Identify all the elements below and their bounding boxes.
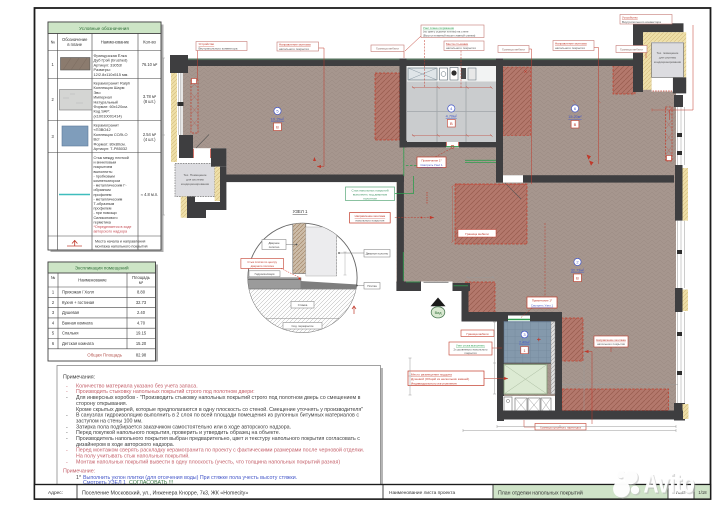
svg-text:Примечания:: Примечания: xyxy=(63,375,95,381)
svg-text:В: В xyxy=(574,122,577,127)
svg-text:Наименование: Наименование xyxy=(101,40,130,45)
svg-text:Индивидуального изготовления: Индивидуального изготовления xyxy=(411,382,457,386)
svg-text:2.40м²: 2.40м² xyxy=(519,341,530,345)
svg-text:12/2.8х110х515 мм.: 12/2.8х110х515 мм. xyxy=(94,72,129,77)
svg-text:Общая Площадь: Общая Площадь xyxy=(87,353,122,358)
svg-text:- металлическим Г-: - металлическим Г- xyxy=(94,184,128,188)
svg-text:План отделки напольных покрыти: План отделки напольных покрытий xyxy=(498,489,583,496)
svg-text:Вид: Вид xyxy=(435,311,443,315)
svg-text:Смотреть Узел 1: Смотреть Узел 1 xyxy=(531,303,554,307)
svg-text:кондиционирования: кондиционирования xyxy=(181,182,209,186)
svg-text:4.70м²: 4.70м² xyxy=(446,115,458,119)
svg-text:покрытием: покрытием xyxy=(94,165,113,169)
svg-text:Avito: Avito xyxy=(644,469,695,499)
svg-text:Артикул: Т-Р85032: Артикул: Т-Р85032 xyxy=(94,146,128,151)
svg-text:Адрес:: Адрес: xyxy=(48,490,63,496)
svg-text:Кол-во: Кол-во xyxy=(143,40,156,45)
svg-text:образным: образным xyxy=(94,188,112,192)
svg-text:Примечание:: Примечание: xyxy=(63,469,95,475)
svg-text:Плитка: Плитка xyxy=(367,284,377,288)
svg-text:-: - xyxy=(66,448,68,454)
svg-text:19.15м²: 19.15м² xyxy=(271,118,285,122)
svg-text:2.40: 2.40 xyxy=(137,310,146,315)
svg-text:1*: 1* xyxy=(76,475,81,481)
svg-text:Внутрипольного конвектора: Внутрипольного конвектора xyxy=(622,20,661,24)
svg-text:15.20м²: 15.20м² xyxy=(568,115,582,119)
svg-text:- при помощи: - при помощи xyxy=(94,211,117,215)
svg-text:герметика: герметика xyxy=(94,220,112,224)
svg-text:Граница кухонного гарнитура: Граница кухонного гарнитура xyxy=(540,425,581,429)
svg-text:Душевая: Душевая xyxy=(62,310,79,315)
svg-text:-: - xyxy=(66,459,68,465)
svg-text:Дверное полотно: Дверное полотно xyxy=(366,252,389,256)
svg-text:Стык между плиткой: Стык между плиткой xyxy=(94,156,129,160)
svg-text:кондиционирования: кондиционирования xyxy=(654,60,681,64)
svg-text:Направление монтажа: Направление монтажа xyxy=(555,41,587,45)
svg-text:-: - xyxy=(66,395,68,401)
svg-text:32.73м²: 32.73м² xyxy=(571,269,585,273)
svg-text:полотно: полотно xyxy=(269,245,280,249)
svg-text:напольного покрытия: напольного покрытия xyxy=(356,218,385,222)
svg-text:напольного покрытия: напольного покрытия xyxy=(597,342,625,346)
svg-text:авторского надзора: авторского надзора xyxy=(94,230,129,234)
svg-text:м²: м² xyxy=(139,280,144,285)
svg-text:Спальня: Спальня xyxy=(62,331,78,336)
svg-text:Поселение Московский, ул., Инж: Поселение Московский, ул., Инженера Кнор… xyxy=(82,489,248,496)
svg-text:напольного покрытия: напольного покрытия xyxy=(446,46,476,50)
svg-text:-: - xyxy=(66,436,68,442)
svg-text:Условные обозначения: Условные обозначения xyxy=(79,26,129,31)
svg-text:Примечание 1*: Примечание 1* xyxy=(421,158,442,162)
svg-text:для системы: для системы xyxy=(659,55,676,59)
svg-text:напольного покрытия: напольного покрытия xyxy=(555,46,585,50)
svg-text:Тех. помещение: Тех. помещение xyxy=(657,51,679,55)
svg-text:(Выступ в ванной выше главной: (Выступ в ванной выше главной спинки) xyxy=(423,33,475,37)
svg-text:дверного полотна: дверного полотна xyxy=(251,264,275,268)
svg-text:Направление монтажа: Направление монтажа xyxy=(355,214,386,218)
svg-text:Наименование листа проекта: Наименование листа проекта xyxy=(389,490,456,496)
svg-text:Граница мебели: Граница мебели xyxy=(620,48,643,52)
svg-text:№: № xyxy=(50,40,55,45)
svg-text:профилем: профилем xyxy=(94,207,112,211)
svg-text:выполнить:: выполнить: xyxy=(94,170,113,174)
svg-text:Граница мебели: Граница мебели xyxy=(376,47,399,51)
svg-text:Примечание 1*: Примечание 1* xyxy=(532,299,553,303)
svg-text:В: В xyxy=(450,121,453,126)
svg-text:№: № xyxy=(51,275,56,280)
svg-text:Душевой (Общий из нескольких к: Душевой (Общий из нескольких камней) xyxy=(411,377,469,381)
svg-text:компенсатором: компенсатором xyxy=(94,179,121,183)
svg-text:Сод. перекрытие: Сод. перекрытие xyxy=(291,324,314,328)
svg-text:- пробковым: - пробковым xyxy=(94,174,116,178)
svg-text:32.73: 32.73 xyxy=(136,300,147,305)
svg-text:Прихожая / Холл: Прихожая / Холл xyxy=(62,290,95,295)
svg-text:(4 шт.): (4 шт.) xyxy=(144,137,157,142)
svg-text:19.15: 19.15 xyxy=(136,331,147,336)
svg-text:*Определяется в ходе: *Определяется в ходе xyxy=(94,225,132,229)
svg-text:профилем: профилем xyxy=(94,193,112,197)
svg-text:Внутрипольного конвектора: Внутрипольного конвектора xyxy=(199,46,238,50)
svg-text:Места начала и направления: Места начала и направления xyxy=(95,240,145,244)
svg-text:Ванная комната: Ванная комната xyxy=(62,320,93,325)
svg-text:Граница мебели: Граница мебели xyxy=(467,332,489,336)
svg-text:Смотреть Узел 1: Смотреть Узел 1 xyxy=(420,163,443,167)
svg-text:4.70: 4.70 xyxy=(137,320,146,325)
svg-text:8.80: 8.80 xyxy=(137,290,146,295)
svg-text:Граница мебели: Граница мебели xyxy=(465,232,489,236)
svg-text:полотном: полотном xyxy=(363,197,376,201)
svg-text:Гидроизоляция: Гидроизоляция xyxy=(255,272,275,276)
svg-text:Направление монтажа: Направление монтажа xyxy=(596,338,626,342)
svg-text:82.98: 82.98 xyxy=(136,353,147,358)
svg-text:(8 шт.): (8 шт.) xyxy=(144,99,157,104)
svg-text:покрытия: покрытия xyxy=(464,351,477,355)
svg-text:монтажа напольного покрытия: монтажа напольного покрытия xyxy=(95,244,148,248)
svg-text:- металлическим: - металлическим xyxy=(94,197,123,201)
svg-text:1/18: 1/18 xyxy=(698,490,707,495)
svg-text:(х10010001414): (х10010001414) xyxy=(94,113,123,118)
svg-text:Граница мебели: Граница мебели xyxy=(502,48,525,52)
svg-text:УЗЕЛ 1: УЗЕЛ 1 xyxy=(293,209,308,214)
svg-text:Кухня + гостиная: Кухня + гостиная xyxy=(62,300,94,305)
svg-text:Силиконового: Силиконового xyxy=(94,216,118,220)
svg-text:76.10 м²: 76.10 м² xyxy=(142,62,158,67)
svg-text:в плане: в плане xyxy=(67,42,82,47)
svg-text:Т-образным: Т-образным xyxy=(94,202,115,206)
svg-text:В: В xyxy=(276,125,279,130)
svg-text:Место размещения поддона: Место размещения поддона xyxy=(411,373,452,377)
svg-text:Детская комната: Детская комната xyxy=(62,341,95,346)
svg-text:напольного покрытия: напольного покрытия xyxy=(279,47,309,51)
svg-text:Устройство: Устройство xyxy=(622,15,638,19)
svg-text:В: В xyxy=(576,276,579,281)
svg-text:Экспликация помещений: Экспликация помещений xyxy=(75,265,129,271)
svg-text:и виниловым: и виниловым xyxy=(94,161,117,165)
svg-text:15.20: 15.20 xyxy=(136,341,147,346)
svg-text:Места стыковки: Места стыковки xyxy=(446,42,468,46)
svg-text:Стяжка: Стяжка xyxy=(298,303,308,307)
svg-text:≈ 4.8 м.п.: ≈ 4.8 м.п. xyxy=(141,192,159,197)
svg-text:Монтаж напольных покрытий выве: Монтаж напольных покрытий вывести в одну… xyxy=(76,458,340,465)
svg-text:для системы: для системы xyxy=(186,178,204,182)
svg-text:Наименование: Наименование xyxy=(78,278,107,283)
svg-text:-: - xyxy=(66,413,68,419)
svg-text:Тех. Помещение: Тех. Помещение xyxy=(183,173,206,177)
